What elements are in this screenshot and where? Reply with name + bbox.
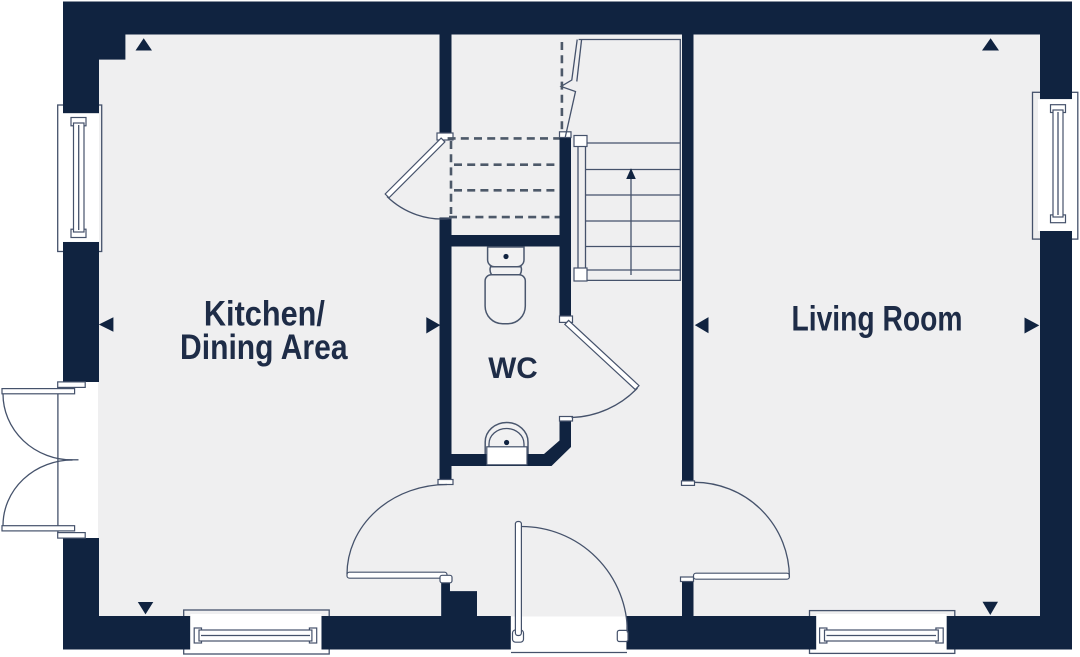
svg-text:Living Room: Living Room [792, 300, 963, 339]
svg-text:WC: WC [488, 352, 538, 385]
svg-text:Dining Area: Dining Area [180, 328, 348, 367]
